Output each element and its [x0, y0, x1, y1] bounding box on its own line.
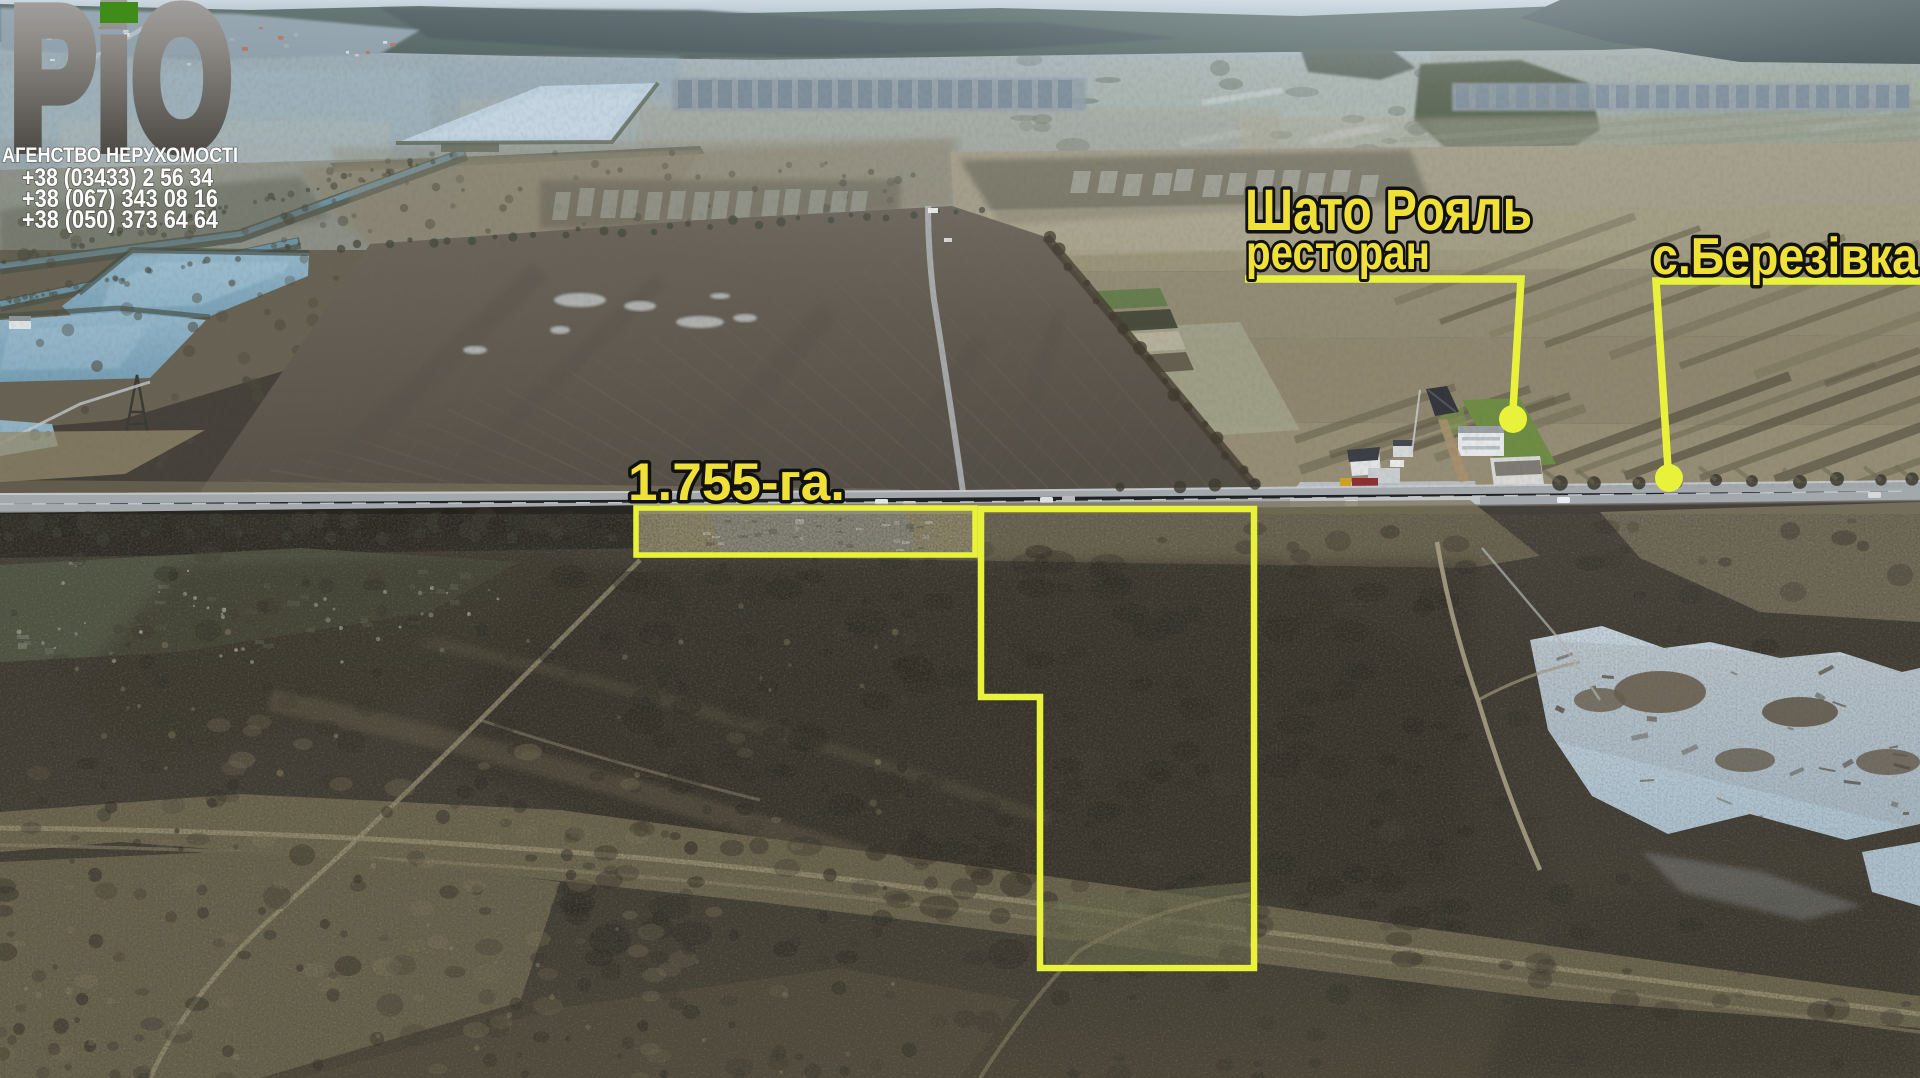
svg-text:ресторан: ресторан [1246, 227, 1430, 280]
svg-text:1.755-га.: 1.755-га. [628, 453, 845, 512]
svg-text:с.Березівка: с.Березівка [1652, 228, 1919, 286]
svg-text:+38 (050) 373 64 64: +38 (050) 373 64 64 [22, 206, 218, 234]
